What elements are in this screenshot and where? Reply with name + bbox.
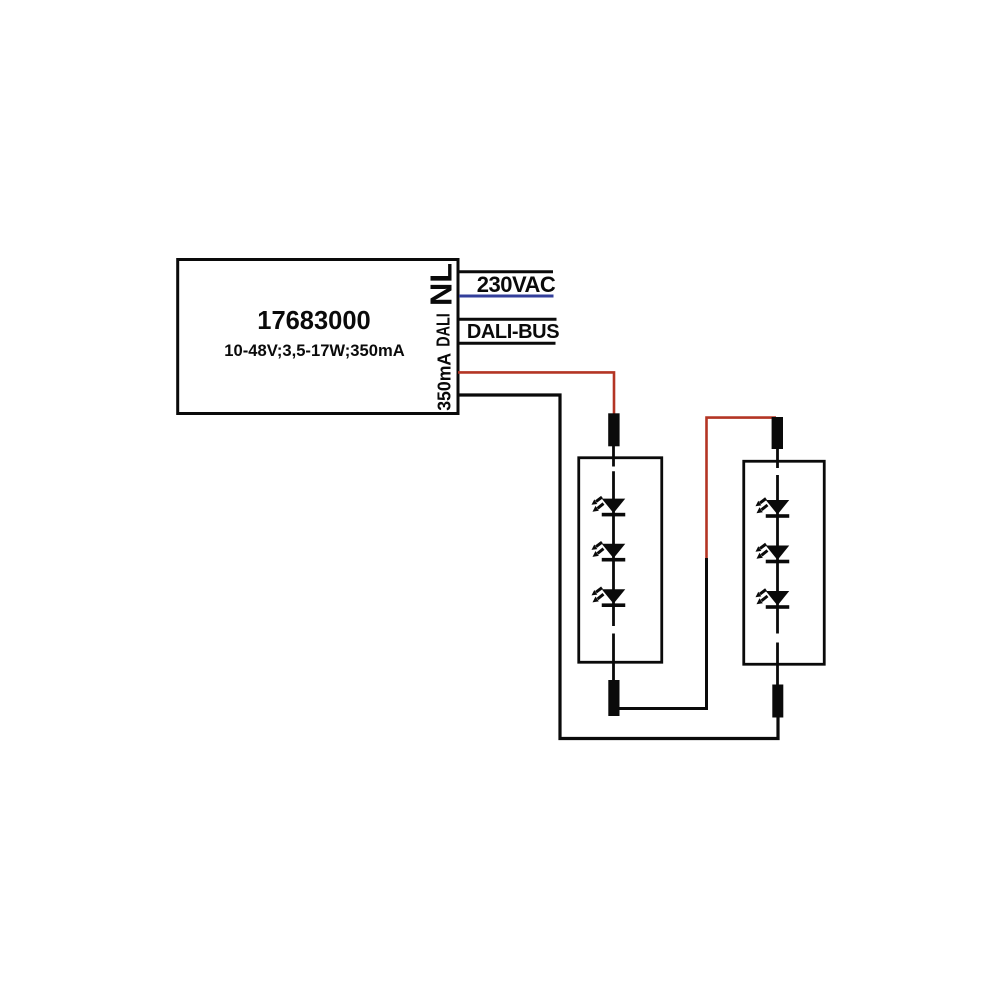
svg-text:NL: NL	[425, 263, 459, 306]
svg-text:DALI: DALI	[434, 313, 454, 347]
svg-text:17683000: 17683000	[257, 307, 370, 335]
svg-text:350mA: 350mA	[435, 353, 455, 411]
svg-text:DALI-BUS: DALI-BUS	[467, 321, 559, 343]
svg-text:230VAC: 230VAC	[477, 272, 556, 297]
svg-text:10-48V;3,5-17W;350mA: 10-48V;3,5-17W;350mA	[224, 341, 404, 360]
